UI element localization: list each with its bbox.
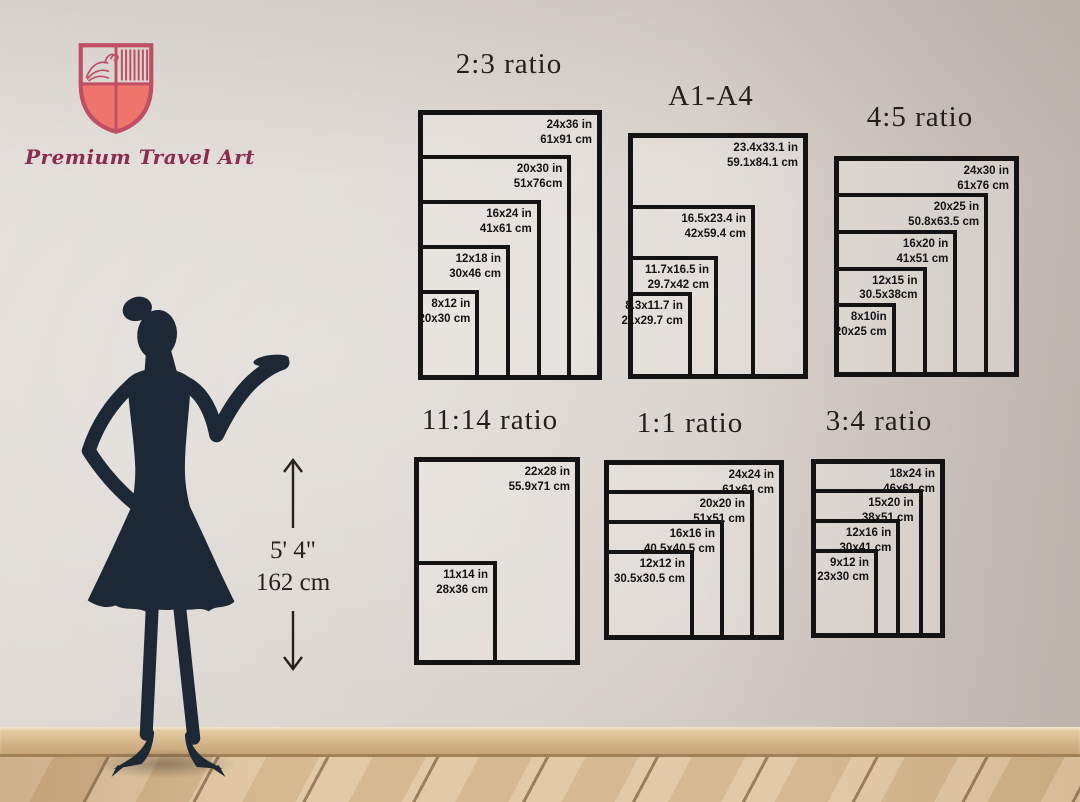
size-label-inches: 16x20 in xyxy=(897,237,949,252)
size-label-cm: 50.8x63.5 cm xyxy=(908,215,979,230)
height-metric-label: 162 cm xyxy=(253,568,333,598)
stripes-icon xyxy=(122,49,147,80)
size-label: 12x15 in30.5x38cm xyxy=(859,274,917,304)
size-label-cm: 30x46 cm xyxy=(449,267,501,282)
size-label: 11.7x16.5 in29.7x42 cm xyxy=(645,263,709,293)
height-indicator: 5' 4" 162 cm xyxy=(253,456,333,674)
height-imperial-label: 5' 4" xyxy=(253,536,333,566)
size-label: 24x36 in61x91 cm xyxy=(540,118,592,148)
size-label-cm: 55.9x71 cm xyxy=(509,480,570,495)
size-label-inches: 24x24 in xyxy=(722,468,774,483)
size-label-inches: 8.3x11.7 in xyxy=(621,299,682,314)
size-label-cm: 20x30 cm xyxy=(419,312,471,327)
size-chart-ratio-1-1: 1:1 ratio24x24 in61x61 cm20x20 in51x51 c… xyxy=(604,460,784,640)
chart-title: 1:1 ratio xyxy=(637,407,743,440)
size-label: 20x30 in51x76cm xyxy=(514,162,563,192)
size-label: 8x12 in20x30 cm xyxy=(419,297,471,327)
size-label-cm: 41x61 cm xyxy=(480,222,532,237)
size-rect: 9x12 in23x30 cm xyxy=(811,549,878,639)
down-arrow-icon xyxy=(253,610,333,674)
size-rect: 8x10in20x25 cm xyxy=(834,303,896,377)
size-label-inches: 16x24 in xyxy=(480,207,532,222)
size-label-inches: 22x28 in xyxy=(509,465,570,480)
size-label: 24x30 in61x76 cm xyxy=(957,164,1009,194)
size-label: 16.5x23.4 in42x59.4 cm xyxy=(681,212,746,242)
size-label-cm: 30.5x30.5 cm xyxy=(614,572,685,587)
size-label-cm: 20x25 cm xyxy=(835,325,887,340)
size-label: 16x20 in41x51 cm xyxy=(897,237,949,267)
size-label-cm: 61x91 cm xyxy=(540,133,592,148)
chart-title: 11:14 ratio xyxy=(422,404,558,437)
size-chart-ratio-2-3: 2:3 ratio24x36 in61x91 cm20x30 in51x76cm… xyxy=(418,110,602,380)
size-label-cm: 23x30 cm xyxy=(817,570,869,585)
size-rect: 12x12 in30.5x30.5 cm xyxy=(604,550,694,640)
size-label-inches: 24x30 in xyxy=(957,164,1009,179)
up-arrow-icon xyxy=(253,456,333,530)
chart-title: A1-A4 xyxy=(668,80,754,113)
size-label-inches: 8x10in xyxy=(835,310,887,325)
size-label: 8x10in20x25 cm xyxy=(835,310,887,340)
size-label-inches: 15x20 in xyxy=(862,496,914,511)
size-label: 22x28 in55.9x71 cm xyxy=(509,465,570,495)
size-label-inches: 23.4x33.1 in xyxy=(727,141,798,156)
size-label: 16x24 in41x61 cm xyxy=(480,207,532,237)
size-label-inches: 8x12 in xyxy=(419,297,471,312)
size-label: 20x25 in50.8x63.5 cm xyxy=(908,200,979,230)
size-label-inches: 11x14 in xyxy=(436,568,488,583)
brand-logo: Premium Travel Art xyxy=(25,40,207,169)
chart-title: 4:5 ratio xyxy=(867,101,973,134)
bird-palm-icon xyxy=(87,54,118,80)
chart-title: 2:3 ratio xyxy=(456,48,562,81)
size-label-inches: 16x16 in xyxy=(644,527,715,542)
chart-title: 3:4 ratio xyxy=(826,405,932,438)
size-chart-ratio-4-5: 4:5 ratio24x30 in61x76 cm20x25 in50.8x63… xyxy=(834,156,1019,377)
scene: Premium Travel Art 5' 4" 162 cm 2:3 rati… xyxy=(0,0,1080,802)
size-label: 8.3x11.7 in21x29.7 cm xyxy=(621,299,682,329)
size-rect: 11x14 in28x36 cm xyxy=(414,561,497,665)
size-label-inches: 20x20 in xyxy=(693,497,745,512)
size-label: 12x12 in30.5x30.5 cm xyxy=(614,557,685,587)
size-label: 9x12 in23x30 cm xyxy=(817,556,869,586)
size-label-cm: 51x76cm xyxy=(514,177,563,192)
size-label-cm: 21x29.7 cm xyxy=(621,314,682,329)
size-chart-a1-a4: A1-A423.4x33.1 in59.1x84.1 cm16.5x23.4 i… xyxy=(628,133,808,379)
size-label-inches: 12x15 in xyxy=(859,274,917,289)
size-label-cm: 30.5x38cm xyxy=(859,288,917,303)
size-chart-ratio-11-14: 11:14 ratio22x28 in55.9x71 cm11x14 in28x… xyxy=(414,457,580,665)
brand-name: Premium Travel Art xyxy=(25,145,207,169)
size-label-inches: 12x16 in xyxy=(840,526,892,541)
size-label-inches: 12x12 in xyxy=(614,557,685,572)
size-label-inches: 12x18 in xyxy=(449,252,501,267)
size-rect: 8.3x11.7 in21x29.7 cm xyxy=(628,292,692,379)
size-label-inches: 20x25 in xyxy=(908,200,979,215)
size-label-cm: 29.7x42 cm xyxy=(645,278,709,293)
size-label-cm: 41x51 cm xyxy=(897,252,949,267)
size-label-inches: 24x36 in xyxy=(540,118,592,133)
size-label-inches: 20x30 in xyxy=(514,162,563,177)
size-label-inches: 16.5x23.4 in xyxy=(681,212,746,227)
size-label-cm: 59.1x84.1 cm xyxy=(727,156,798,171)
size-label-inches: 11.7x16.5 in xyxy=(645,263,709,278)
shield-logo-icon xyxy=(74,40,158,137)
size-label: 23.4x33.1 in59.1x84.1 cm xyxy=(727,141,798,171)
size-chart-ratio-3-4: 3:4 ratio18x24 in46x61 cm15x20 in38x51 c… xyxy=(811,459,945,638)
size-label: 12x18 in30x46 cm xyxy=(449,252,501,282)
size-label-cm: 61x76 cm xyxy=(957,179,1009,194)
size-label-cm: 28x36 cm xyxy=(436,583,488,598)
size-rect: 8x12 in20x30 cm xyxy=(418,290,479,380)
size-label-inches: 9x12 in xyxy=(817,556,869,571)
size-label-cm: 42x59.4 cm xyxy=(681,227,746,242)
size-label: 11x14 in28x36 cm xyxy=(436,568,488,598)
size-label-inches: 18x24 in xyxy=(883,467,935,482)
